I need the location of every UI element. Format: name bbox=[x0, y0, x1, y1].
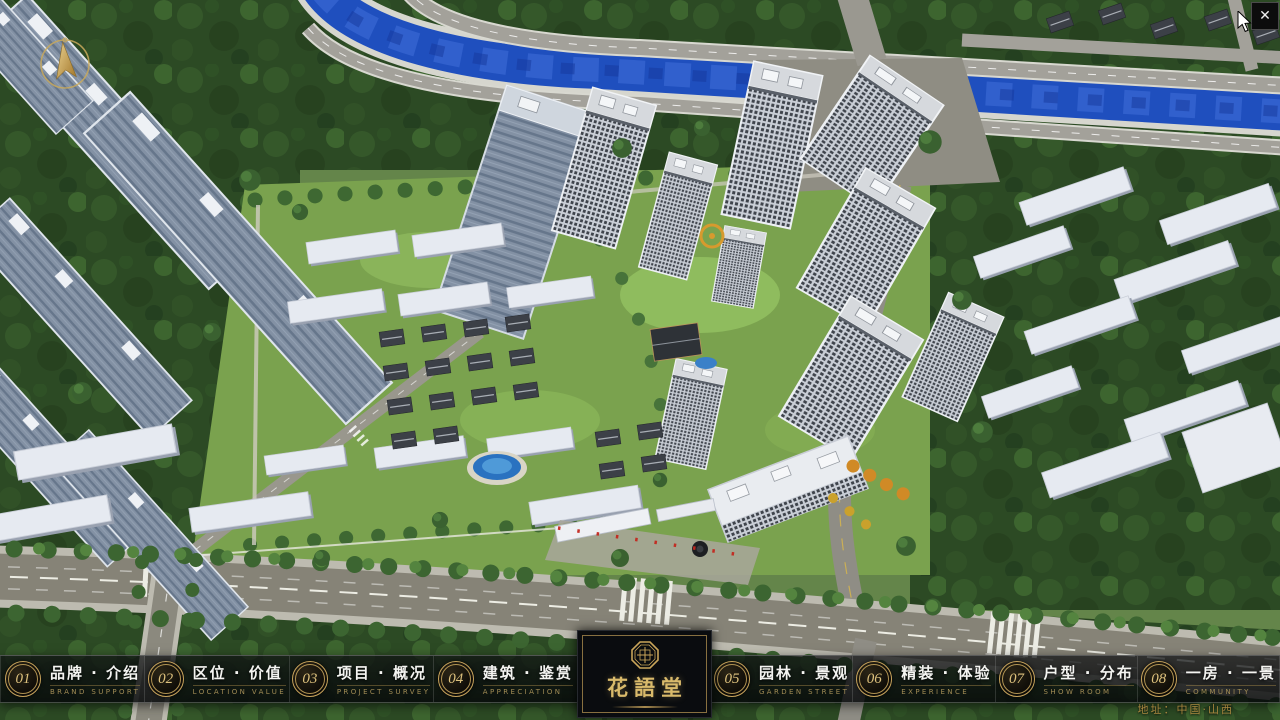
nav-number-badge: 07 bbox=[999, 661, 1035, 697]
logo-seal-icon bbox=[631, 641, 659, 669]
nav-number-badge: 08 bbox=[1141, 661, 1177, 697]
nav-label: 品牌 · 介绍 bbox=[50, 662, 140, 683]
nav-caption: EXPERIENCE bbox=[901, 685, 991, 696]
nav-number-badge: 05 bbox=[714, 661, 750, 697]
nav-label: 建筑 · 鉴赏 bbox=[483, 662, 573, 683]
nav-caption: SHOW ROOM bbox=[1044, 685, 1134, 696]
nav-caption: APPRECIATION bbox=[483, 685, 573, 696]
nav-label: 户型 · 分布 bbox=[1044, 662, 1134, 683]
nav-number-badge: 06 bbox=[856, 661, 892, 697]
nav-number-badge: 03 bbox=[292, 661, 328, 697]
nav-number-badge: 02 bbox=[148, 661, 184, 697]
nav-label: 项目 · 概况 bbox=[337, 662, 427, 683]
compass-north-icon bbox=[36, 34, 94, 92]
mouse-cursor-icon bbox=[1237, 11, 1253, 33]
nav-item-garden[interactable]: 05 园林 · 景观 GARDEN STREET bbox=[711, 656, 853, 702]
nav-label: 一房 · 一景 bbox=[1186, 662, 1276, 683]
project-logo-panel[interactable]: 花語堂 bbox=[577, 630, 712, 718]
project-logo-name: 花語堂 bbox=[601, 672, 688, 702]
aerial-masterplan-render bbox=[0, 0, 1280, 720]
nav-number-badge: 01 bbox=[5, 661, 41, 697]
nav-item-location[interactable]: 02 区位 · 价值 LOCATION VALUE bbox=[145, 656, 289, 702]
nav-caption: COMMUNITY bbox=[1186, 685, 1276, 696]
nav-item-project[interactable]: 03 项目 · 概况 PROJECT SURVEY bbox=[290, 656, 434, 702]
nav-item-brand[interactable]: 01 品牌 · 介绍 BRAND SUPPORT bbox=[1, 656, 145, 702]
nav-caption: BRAND SUPPORT bbox=[50, 685, 140, 696]
nav-label: 园林 · 景观 bbox=[759, 662, 849, 683]
nav-item-architecture[interactable]: 04 建筑 · 鉴赏 APPRECIATION bbox=[434, 656, 578, 702]
close-button[interactable]: ✕ bbox=[1251, 2, 1279, 30]
nav-label: 区位 · 价值 bbox=[193, 662, 283, 683]
logo-divider bbox=[612, 706, 678, 708]
project-address: 地址：中国·山西 bbox=[1138, 701, 1235, 717]
nav-number-badge: 04 bbox=[438, 661, 474, 697]
nav-item-floorplans[interactable]: 07 户型 · 分布 SHOW ROOM bbox=[996, 656, 1138, 702]
nav-label: 精装 · 体验 bbox=[901, 662, 991, 683]
nav-caption: GARDEN STREET bbox=[759, 685, 849, 696]
nav-caption: PROJECT SURVEY bbox=[337, 685, 431, 696]
nav-item-interior[interactable]: 06 精装 · 体验 EXPERIENCE bbox=[853, 656, 995, 702]
nav-caption: LOCATION VALUE bbox=[193, 685, 286, 696]
nav-item-views[interactable]: 08 一房 · 一景 COMMUNITY bbox=[1138, 656, 1280, 702]
